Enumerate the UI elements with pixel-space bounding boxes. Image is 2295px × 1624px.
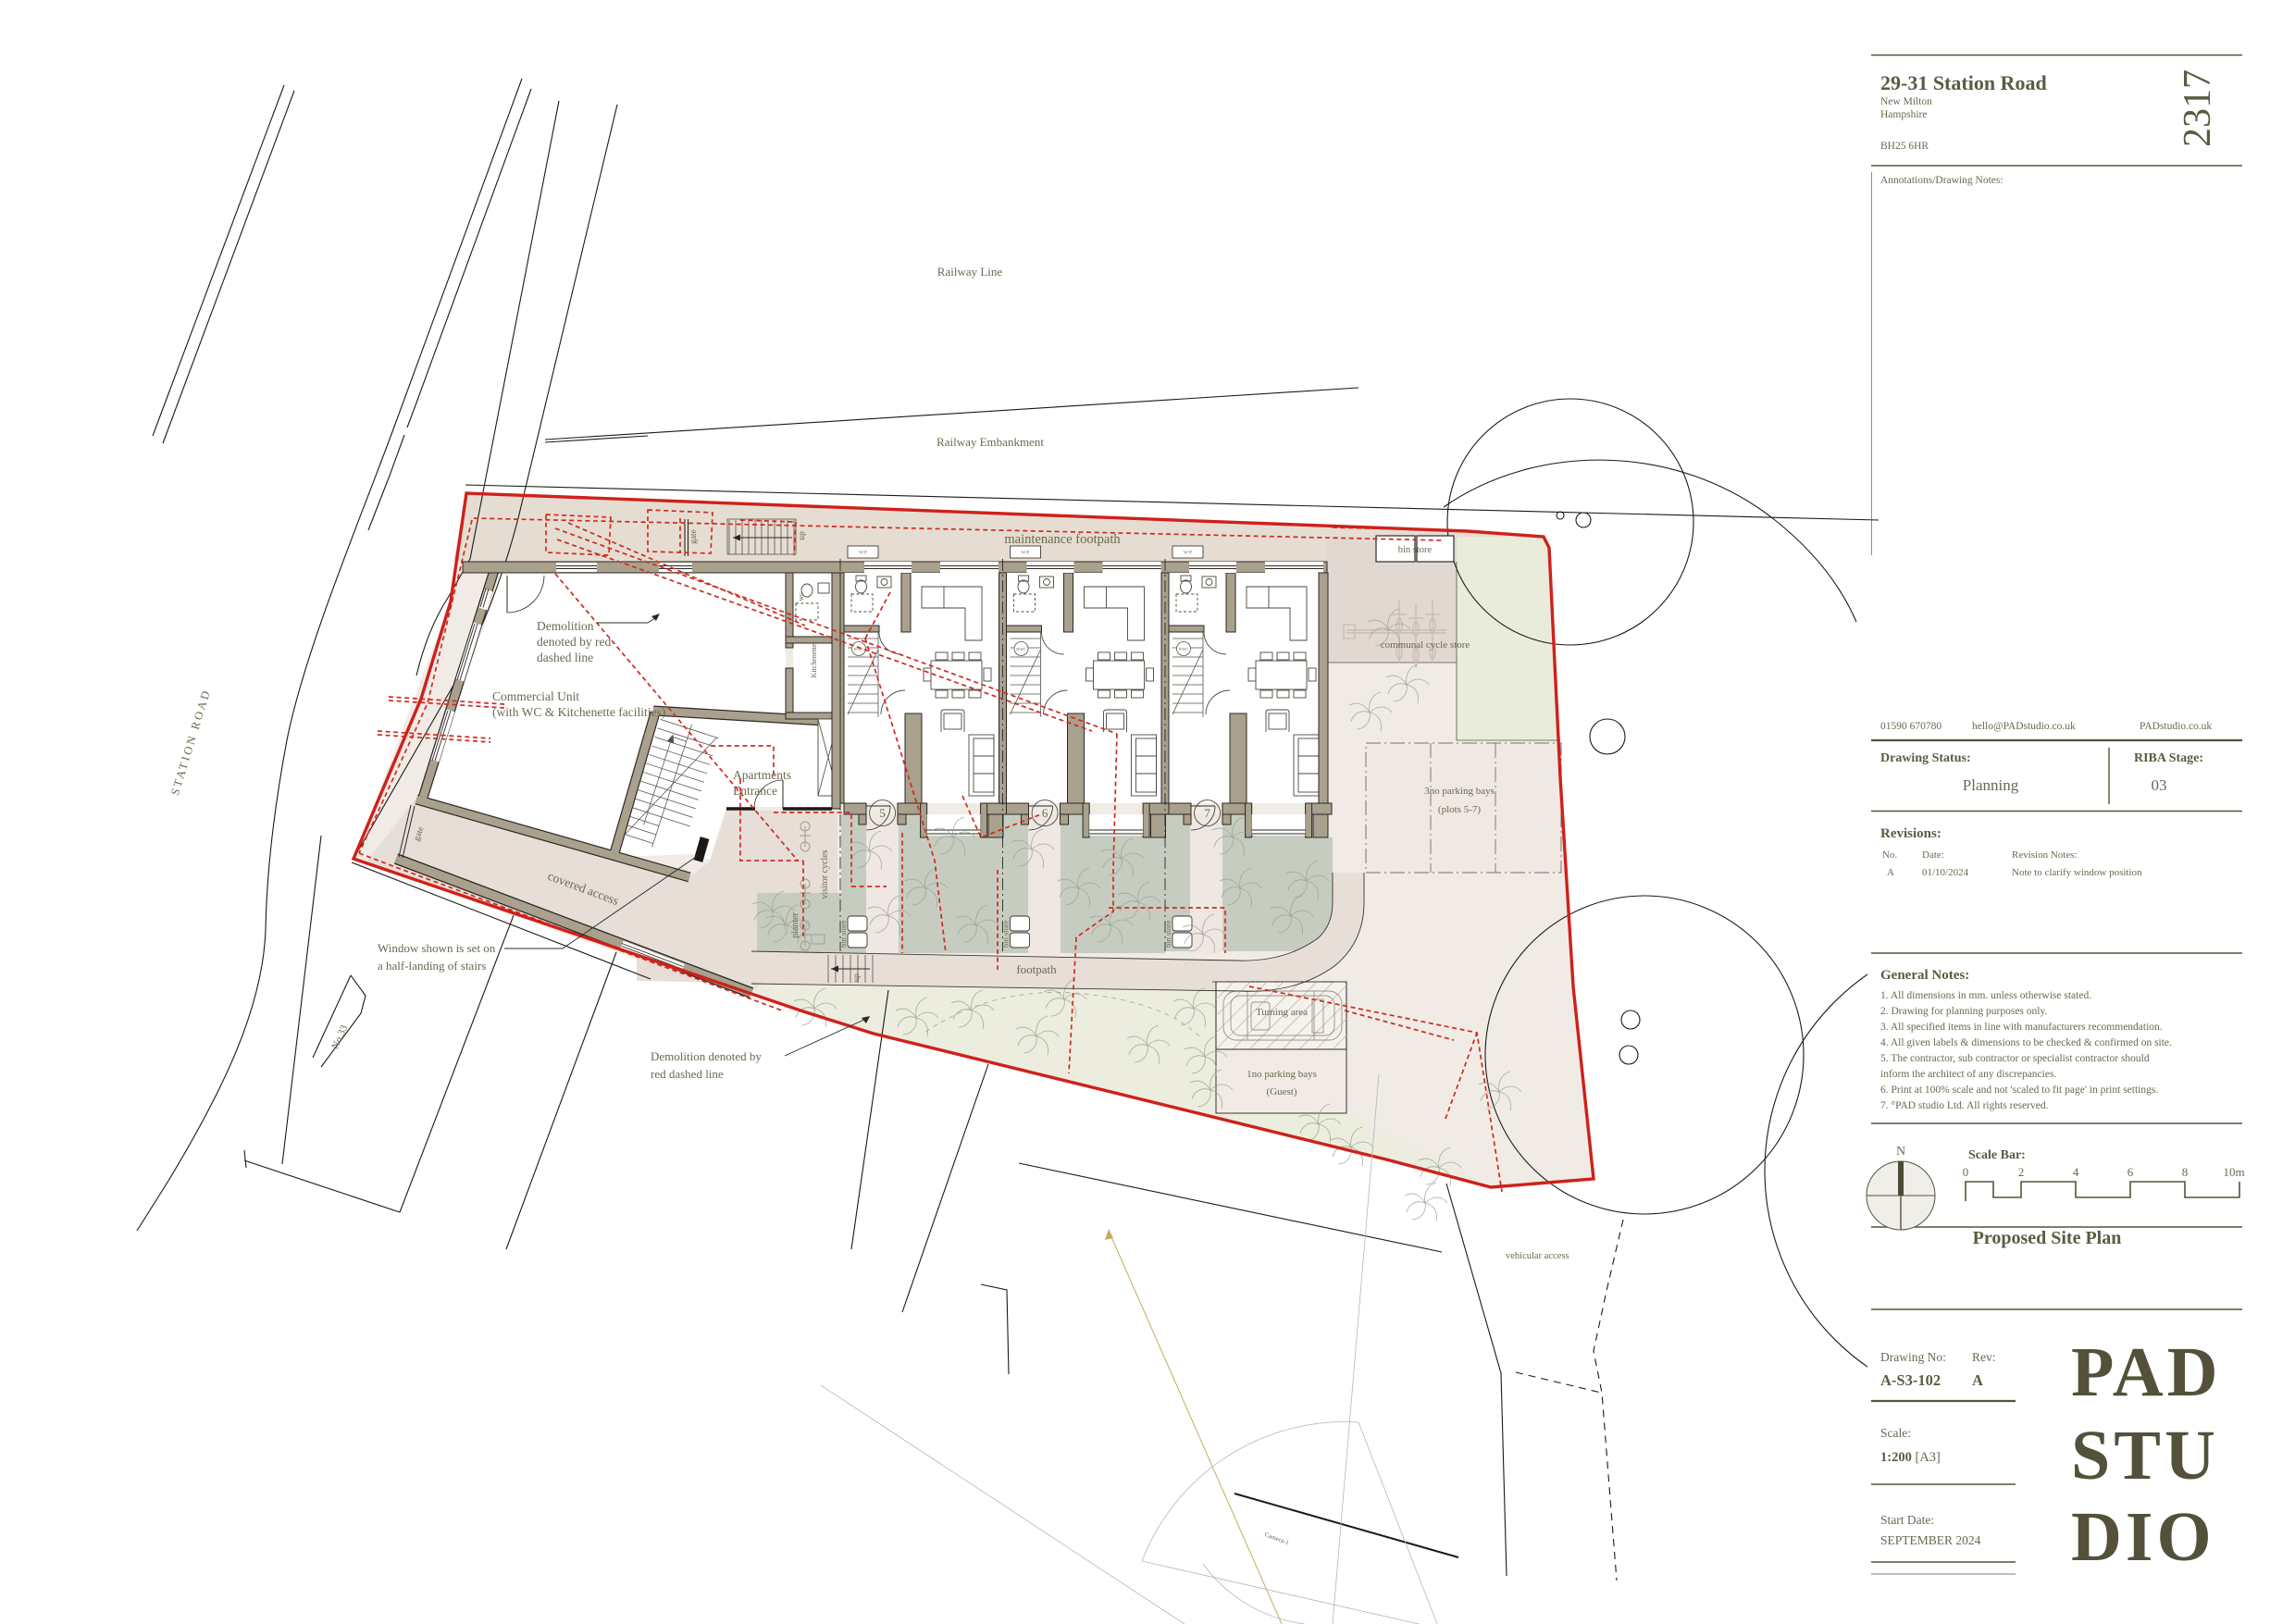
svg-text:denoted by red: denoted by red: [537, 635, 611, 649]
svg-text:1. All dimensions in mm. unle: 1. All dimensions in mm. unless otherwis…: [1880, 990, 2091, 1001]
svg-text:Window shown is set on: Window shown is set on: [378, 941, 496, 955]
svg-text:5: 5: [879, 806, 886, 820]
svg-text:bin store: bin store: [1398, 545, 1433, 555]
svg-text:7. °PAD studio Ltd. All rights: 7. °PAD studio Ltd. All rights reserved.: [1880, 1100, 2049, 1111]
svg-text:Revisions:: Revisions:: [1880, 826, 1941, 841]
svg-text:(with WC & Kitchenette facilit: (with WC & Kitchenette facilities): [492, 705, 665, 719]
svg-text:Railway Line: Railway Line: [937, 265, 1003, 279]
svg-text:0: 0: [1963, 1165, 1969, 1179]
svg-text:General Notes:: General Notes:: [1880, 968, 1969, 983]
svg-text:01/10/2024: 01/10/2024: [1922, 867, 1969, 878]
svg-text:8: 8: [2182, 1165, 2189, 1179]
svg-text:03: 03: [2152, 776, 2167, 794]
svg-text:Date:: Date:: [1922, 849, 1944, 861]
svg-text:communal cycle store: communal cycle store: [1381, 639, 1470, 651]
svg-text:4: 4: [2073, 1165, 2079, 1179]
svg-text:footpath: footpath: [1016, 962, 1057, 976]
svg-text:(plots 5-7): (plots 5-7): [1438, 804, 1481, 815]
svg-text:No.33: No.33: [329, 1023, 350, 1050]
svg-text:BH25 6HR: BH25 6HR: [1880, 141, 1929, 152]
svg-text:Drawing No:: Drawing No:: [1880, 1350, 1946, 1364]
svg-text:Hampshire: Hampshire: [1880, 109, 1927, 120]
svg-text:Scale:: Scale:: [1880, 1426, 1911, 1440]
svg-text:Camera-1: Camera-1: [1263, 1531, 1290, 1546]
svg-text:Scale Bar:: Scale Bar:: [1968, 1148, 2026, 1162]
svg-text:2: 2: [2018, 1165, 2025, 1179]
svg-text:Commercial Unit: Commercial Unit: [492, 689, 579, 703]
svg-text:STATION ROAD: STATION ROAD: [168, 688, 213, 797]
svg-text:Start Date:: Start Date:: [1880, 1513, 1934, 1527]
svg-text:Apartments: Apartments: [733, 768, 791, 782]
svg-text:dashed line: dashed line: [537, 651, 593, 664]
svg-text:Rev:: Rev:: [1972, 1350, 1996, 1364]
svg-text:A: A: [1972, 1371, 1983, 1389]
svg-text:wc: wc: [797, 592, 805, 601]
svg-text:A-S3-102: A-S3-102: [1880, 1371, 1941, 1389]
svg-text:Planning: Planning: [1963, 776, 2019, 794]
svg-text:vehicular access: vehicular access: [1506, 1251, 1569, 1261]
svg-text:5. The contractor, sub contrac: 5. The contractor, sub contractor or spe…: [1880, 1053, 2150, 1064]
svg-text:PAD: PAD: [2071, 1333, 2222, 1411]
svg-text:4. All given labels & dimensio: 4. All given labels & dimensions to be c…: [1880, 1037, 2172, 1048]
svg-text:6: 6: [1042, 806, 1048, 820]
svg-text:A: A: [1887, 867, 1894, 878]
svg-text:2317: 2317: [2177, 69, 2219, 147]
svg-text:Turning area: Turning area: [1256, 1007, 1308, 1018]
svg-text:up: up: [798, 531, 807, 540]
svg-text:1no parking bays: 1no parking bays: [1247, 1069, 1317, 1080]
svg-text:a half-landing of stairs: a half-landing of stairs: [378, 959, 486, 973]
svg-text:Revision Notes:: Revision Notes:: [2012, 849, 2078, 861]
svg-text:inform the architect of any di: inform the architect of any discrepancie…: [1880, 1069, 2056, 1080]
svg-text:2. Drawing for planning purpos: 2. Drawing for planning purposes only.: [1880, 1006, 2047, 1017]
svg-text:SEPTEMBER 2024: SEPTEMBER 2024: [1880, 1533, 1981, 1547]
svg-text:DIO: DIO: [2071, 1498, 2215, 1576]
svg-text:Entrance: Entrance: [733, 784, 777, 798]
svg-text:RIBA Stage:: RIBA Stage:: [2134, 751, 2203, 765]
svg-text:PADstudio.co.uk: PADstudio.co.uk: [2140, 721, 2212, 732]
svg-text:1:200 [A3]: 1:200 [A3]: [1880, 1450, 1941, 1465]
svg-text:3. All specified items in line: 3. All specified items in line with manu…: [1880, 1022, 2163, 1033]
svg-text:gate: gate: [689, 529, 699, 544]
svg-text:29-31 Station Road: 29-31 Station Road: [1880, 71, 2047, 94]
svg-text:Railway Embankment: Railway Embankment: [937, 435, 1044, 449]
svg-text:Annotations/Drawing Notes:: Annotations/Drawing Notes:: [1880, 175, 2003, 186]
svg-text:Proposed Site Plan: Proposed Site Plan: [1973, 1228, 2122, 1248]
svg-text:N: N: [1896, 1145, 1905, 1159]
svg-text:No.: No.: [1882, 849, 1897, 861]
svg-text:planter: planter: [790, 911, 800, 937]
svg-text:6: 6: [2128, 1165, 2134, 1179]
svg-text:maintenance footpath: maintenance footpath: [1004, 532, 1121, 547]
svg-text:Demolition: Demolition: [537, 619, 594, 633]
svg-text:(Guest): (Guest): [1267, 1086, 1297, 1097]
svg-text:hello@PADstudio.co.uk: hello@PADstudio.co.uk: [1972, 721, 2076, 732]
svg-text:Drawing Status:: Drawing Status:: [1880, 751, 1971, 765]
svg-text:Note to clarify window positio: Note to clarify window position: [2012, 867, 2142, 878]
svg-text:01590 670780: 01590 670780: [1880, 721, 1941, 732]
svg-text:Kitchenette: Kitchenette: [810, 643, 818, 677]
svg-text:6. Print at 100% scale and not: 6. Print at 100% scale and not 'scaled t…: [1880, 1085, 2158, 1096]
svg-text:STU: STU: [2071, 1417, 2219, 1494]
svg-text:7: 7: [1204, 806, 1210, 820]
svg-text:red dashed line: red dashed line: [651, 1067, 724, 1081]
svg-text:visitor cycles: visitor cycles: [820, 849, 830, 899]
svg-text:up: up: [852, 973, 862, 983]
svg-text:10m: 10m: [2223, 1165, 2244, 1179]
svg-text:New Milton: New Milton: [1880, 96, 1932, 107]
svg-text:Demolition denoted by: Demolition denoted by: [651, 1049, 762, 1063]
svg-text:3no parking bays: 3no parking bays: [1424, 786, 1495, 797]
